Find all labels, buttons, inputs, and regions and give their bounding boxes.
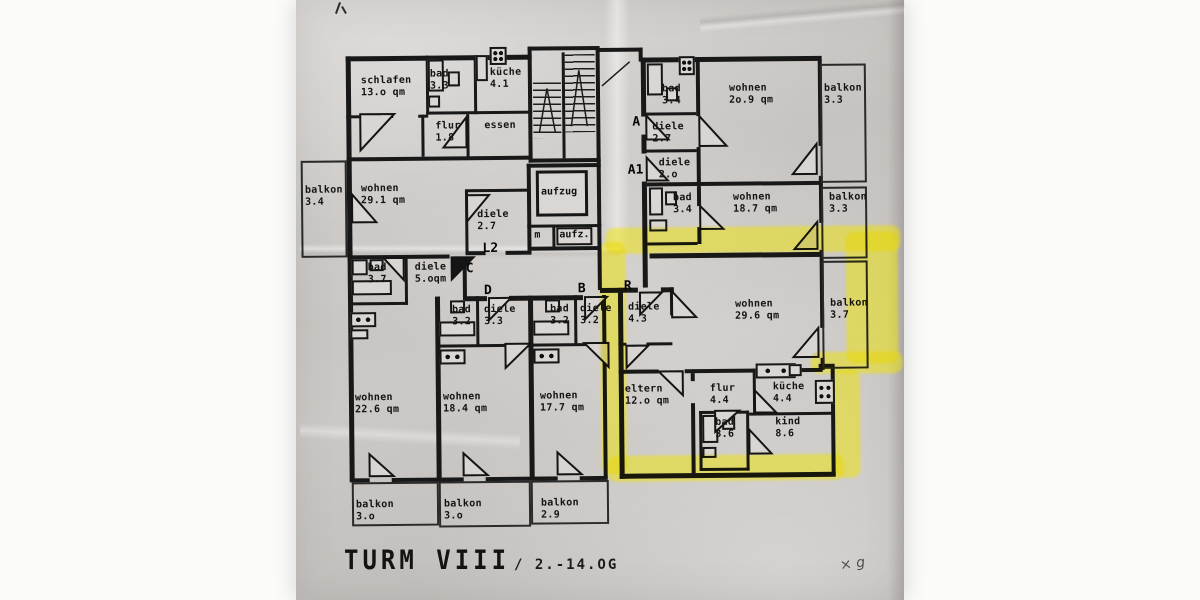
room-bad: bad3.2 <box>452 304 471 328</box>
wall <box>552 226 555 248</box>
wall <box>529 343 608 347</box>
room-name: wohnen <box>361 183 399 194</box>
room-essen: essen <box>484 120 516 132</box>
room-name: küche <box>490 67 522 78</box>
room-area: 4.4 <box>710 395 735 407</box>
room-name: diele <box>415 261 447 272</box>
door-label-c: C <box>466 261 474 276</box>
room-bad: bad3.7 <box>368 262 387 286</box>
room-area: 3.3 <box>430 80 449 92</box>
room-wohnen: wohnen18.7 qm <box>733 191 777 215</box>
room-bad: bad3.4 <box>662 83 681 107</box>
elevator-label-small: aufz. <box>559 229 589 240</box>
stove-icon <box>815 380 835 404</box>
room-kueche: küche4.4 <box>773 381 805 405</box>
wall <box>529 158 601 163</box>
room-bad: bad3.6 <box>715 417 734 441</box>
room-area: 3.2 <box>452 316 471 328</box>
wall <box>347 156 531 162</box>
room-name: diele <box>484 304 516 315</box>
sink-icon <box>533 348 559 363</box>
elevator-label: aufzug <box>541 186 577 197</box>
wall <box>476 296 479 346</box>
room-wohnen: wohnen29.6 qm <box>735 298 779 322</box>
wall <box>465 189 529 193</box>
floor-plan-photo: schlafen13.o qm bad3.3 küche4.1 flur1.8 … <box>0 0 1200 600</box>
door-swing <box>749 429 771 453</box>
toilet-icon <box>448 71 460 86</box>
balcony-outline <box>820 63 867 182</box>
wall <box>574 295 577 345</box>
cabinet-icon <box>352 259 368 275</box>
plan-drawing: schlafen13.o qm bad3.3 küche4.1 flur1.8 … <box>0 0 1200 600</box>
counter-icon <box>476 55 488 81</box>
door-swing <box>505 344 530 368</box>
room-diele: diele5.oqm <box>415 261 447 285</box>
room-diele: diele2.7 <box>652 121 684 145</box>
sink-icon <box>428 96 440 108</box>
balcony-outline <box>301 160 348 257</box>
room-area: 3.2 <box>550 315 569 327</box>
room-area: 22.6 qm <box>355 404 399 416</box>
room-schlafen: schlafen13.o qm <box>361 75 412 99</box>
room-name: wohnen <box>733 191 771 202</box>
room-wohnen: wohnen29.1 qm <box>361 183 405 207</box>
wall <box>644 149 697 153</box>
wall <box>697 147 701 182</box>
wall <box>670 287 674 315</box>
door-swing <box>672 291 696 317</box>
room-name: balkon <box>444 498 482 509</box>
wall <box>351 302 408 306</box>
room-name: bad <box>452 304 471 315</box>
door-label-b: B <box>578 281 586 296</box>
room-area: 3.3 <box>824 94 862 106</box>
door-label-a1: A1 <box>628 163 644 178</box>
room-area: 18.4 qm <box>443 403 487 415</box>
sink-icon <box>439 349 465 364</box>
highlight-stroke-jog <box>811 351 903 374</box>
room-area: 12.o qm <box>625 395 669 407</box>
room-area: 8.6 <box>775 428 800 440</box>
wall <box>506 251 532 255</box>
room-name: wohnen <box>355 392 393 403</box>
room-area: 3.o <box>444 510 482 522</box>
door-swing <box>360 114 394 150</box>
door-swing <box>700 206 723 229</box>
room-name: bad <box>673 192 692 203</box>
wall <box>421 115 424 157</box>
wall <box>699 411 749 414</box>
room-name: bad <box>368 262 387 273</box>
wall <box>641 58 647 117</box>
room-name: küche <box>773 381 805 392</box>
room-name: bad <box>662 83 681 94</box>
plan-title: TURM VIII <box>344 545 510 576</box>
wall <box>696 61 701 116</box>
room-area: 2.7 <box>477 221 509 233</box>
room-diele: diele3.3 <box>484 304 516 328</box>
stairs <box>565 54 596 132</box>
room-area: 4.3 <box>628 313 660 325</box>
counter-icon <box>350 329 368 339</box>
room-diele: diele2.7 <box>477 209 509 233</box>
wall <box>691 373 695 381</box>
door-label-l2: L2 <box>482 241 498 256</box>
room-area: 29.1 qm <box>361 195 405 207</box>
meter-room-label: m <box>534 230 540 241</box>
room-flur: flur1.8 <box>435 120 461 144</box>
wall <box>437 344 530 348</box>
room-name: diele <box>628 301 660 312</box>
door-swing <box>557 452 581 474</box>
room-kind: kind8.6 <box>775 416 801 440</box>
door-swing <box>369 454 393 476</box>
door-label-a: A <box>632 115 640 130</box>
floor-range: / 2.-14.OG <box>514 557 618 573</box>
wall <box>643 112 696 116</box>
stove-icon <box>490 47 507 65</box>
room-area: 1.8 <box>435 132 460 144</box>
room-area: 3.3 <box>484 316 516 328</box>
room-name: flur <box>435 120 460 131</box>
room-name: flur <box>710 383 735 394</box>
room-bad: bad3.2 <box>550 303 569 327</box>
room-area: 2o.9 qm <box>729 94 773 106</box>
room-diele: diele4.3 <box>628 301 660 325</box>
room-eltern: eltern12.o qm <box>625 383 669 407</box>
room-wohnen: wohnen18.4 qm <box>443 391 487 415</box>
room-balkon: balkon3.4 <box>305 184 343 208</box>
door-label-d: D <box>484 283 492 298</box>
wall <box>598 48 643 52</box>
room-area: 29.6 qm <box>735 310 779 322</box>
room-name: balkon <box>824 82 862 93</box>
room-name: wohnen <box>735 298 773 309</box>
wall <box>466 114 469 158</box>
counter-icon <box>789 364 802 376</box>
wall <box>346 115 393 118</box>
door-swing <box>463 453 487 475</box>
room-name: bad <box>550 303 569 314</box>
highlight-stroke-bottom <box>607 454 843 482</box>
room-balkon: balkon3.o <box>356 499 394 523</box>
room-name: wohnen <box>729 82 767 93</box>
room-name: wohnen <box>540 390 578 401</box>
wall <box>527 246 601 251</box>
highlight-stroke-left <box>599 242 627 474</box>
room-name: balkon <box>356 499 394 510</box>
room-area: 5.oqm <box>415 273 447 285</box>
wall <box>749 412 833 416</box>
room-balkon: balkon3.3 <box>824 82 862 106</box>
wall <box>641 56 822 63</box>
room-wohnen: wohnen17.7 qm <box>540 390 584 414</box>
room-name: diele <box>477 209 509 220</box>
highlight-stroke-right <box>845 231 898 363</box>
room-area: 2.o <box>659 169 691 181</box>
room-name: essen <box>484 120 516 131</box>
stairs <box>533 82 562 138</box>
room-name: bad <box>430 68 449 79</box>
room-area: 2.7 <box>652 133 684 145</box>
room-area: 18.7 qm <box>733 203 777 215</box>
room-area: 3.4 <box>305 196 343 208</box>
wall <box>646 342 672 345</box>
room-bad: bad3.4 <box>673 192 692 216</box>
room-name: diele <box>659 157 691 168</box>
door-swing <box>626 346 648 368</box>
room-flur: flur4.4 <box>710 383 736 407</box>
room-name: balkon <box>541 497 579 508</box>
room-name: balkon <box>305 184 343 195</box>
room-name: schlafen <box>361 75 412 86</box>
room-wohnen: wohnen22.6 qm <box>355 392 399 416</box>
wall <box>465 191 469 253</box>
room-balkon: balkon2.9 <box>541 497 579 521</box>
room-kueche: küche4.1 <box>490 67 522 91</box>
room-area: 17.7 qm <box>540 402 584 414</box>
bathtub-icon <box>649 187 663 215</box>
room-wohnen: wohnen2o.9 qm <box>729 82 773 106</box>
room-area: 3.4 <box>662 95 681 107</box>
room-balkon: balkon3.3 <box>829 191 867 215</box>
room-name: bad <box>715 417 734 428</box>
room-area: 2.9 <box>541 509 579 521</box>
door-swing-line <box>602 62 630 86</box>
wall <box>647 181 821 187</box>
room-area: 3.3 <box>829 203 867 215</box>
room-diele: diele2.o <box>659 157 691 181</box>
room-area: 4.1 <box>490 79 522 91</box>
wall <box>527 164 532 251</box>
door-swing <box>699 116 726 146</box>
sink-icon <box>350 312 376 327</box>
wall <box>426 111 532 115</box>
bathtub-icon <box>647 63 663 95</box>
room-area: 4.4 <box>773 393 805 405</box>
room-area: 3.o <box>356 511 394 523</box>
wall <box>527 163 601 168</box>
room-area: 3.4 <box>673 204 692 216</box>
room-name: wohnen <box>443 391 481 402</box>
room-name: diele <box>652 121 684 132</box>
room-area: 13.o qm <box>361 87 412 99</box>
room-area: 3.6 <box>715 429 734 441</box>
wall <box>405 257 408 305</box>
door-swing <box>793 144 817 174</box>
stove-icon <box>679 56 695 75</box>
room-name: eltern <box>625 383 663 394</box>
room-name: kind <box>775 416 800 427</box>
room-balkon: balkon3.o <box>444 498 482 522</box>
wall <box>697 186 701 206</box>
wall <box>528 47 533 163</box>
room-bad: bad3.3 <box>430 68 449 92</box>
room-area: 3.7 <box>368 274 387 286</box>
wall <box>528 46 600 51</box>
room-name: balkon <box>829 191 867 202</box>
